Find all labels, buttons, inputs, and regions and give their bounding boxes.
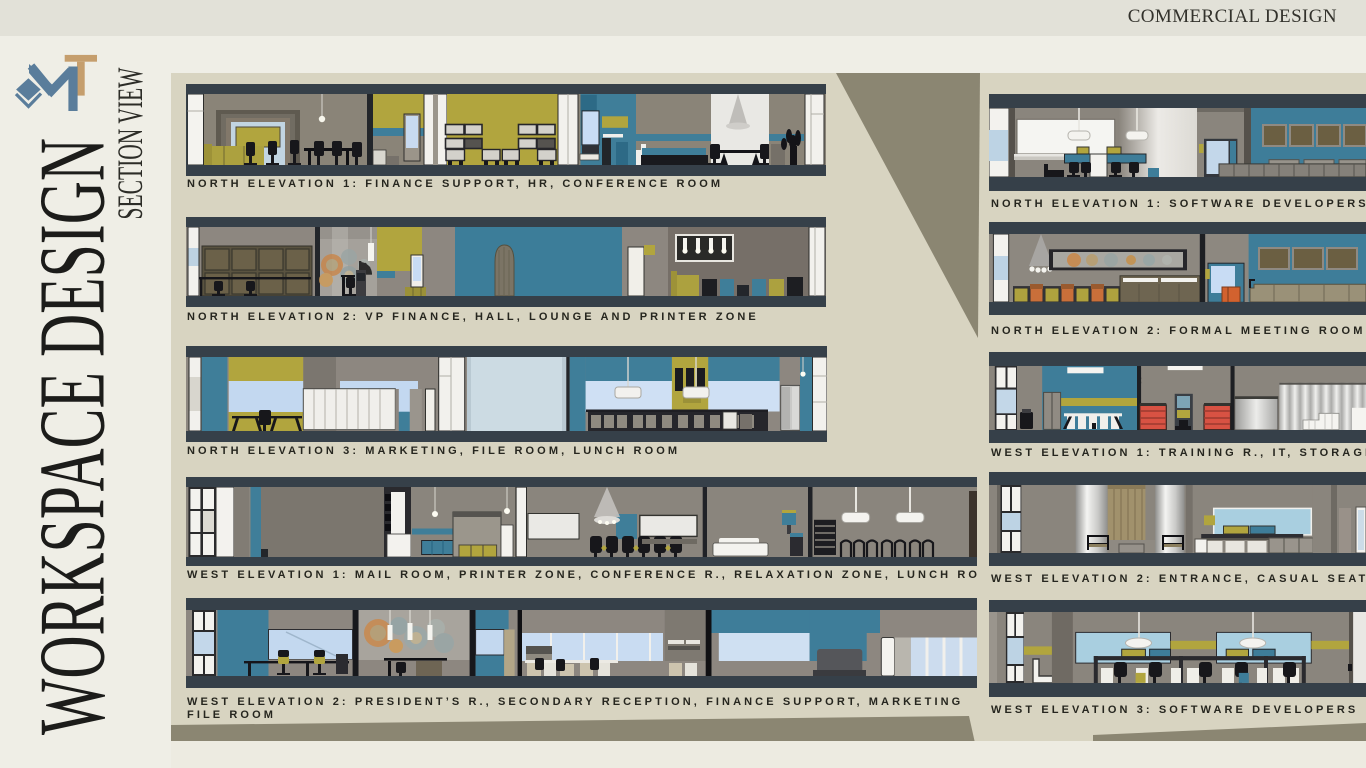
svg-text:WORKSPACE DESIGN: WORKSPACE DESIGN [21,138,125,735]
svg-text:SECTION VIEW: SECTION VIEW [110,67,150,219]
